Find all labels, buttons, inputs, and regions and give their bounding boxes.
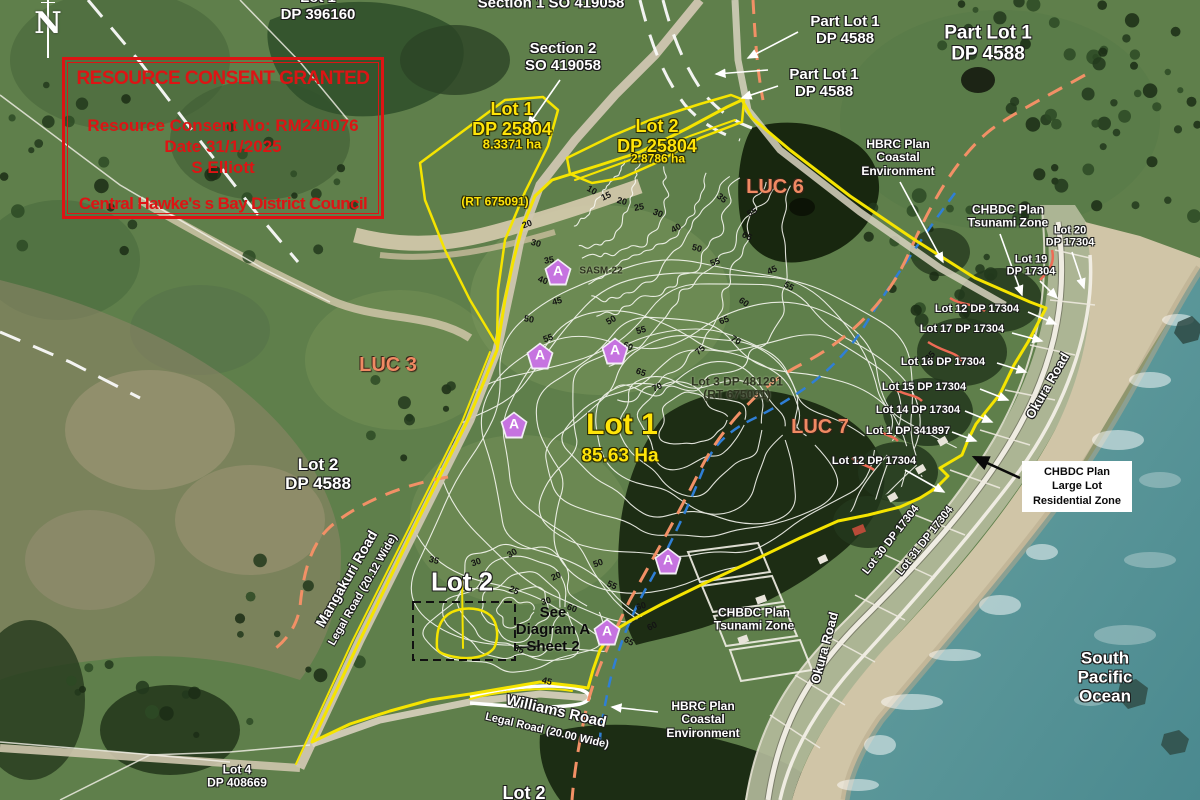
aerial-plan-map: N RESOURCE CONSENT GRANTED Resource Cons… [0, 0, 1200, 800]
large-lot-zone-box: CHBDC Plan Large Lot Residential Zone [1022, 461, 1132, 512]
orange-dashed-line-top [753, 0, 763, 100]
resource-consent-stamp: RESOURCE CONSENT GRANTED Resource Consen… [62, 57, 384, 219]
north-letter: N [28, 6, 68, 41]
consent-number: Resource Consent No: RM240076 [67, 116, 379, 136]
building-site-boundary [437, 609, 497, 659]
consent-council: Central Hawke's s Bay District Council [67, 194, 379, 214]
consent-applicant: S Elliott [67, 158, 379, 178]
north-arrow: N [28, 0, 68, 60]
consent-title: RESOURCE CONSENT GRANTED [67, 68, 379, 90]
diagram-a-extent-box [413, 602, 515, 660]
consent-date: Date 31/1/2025 [67, 137, 379, 157]
